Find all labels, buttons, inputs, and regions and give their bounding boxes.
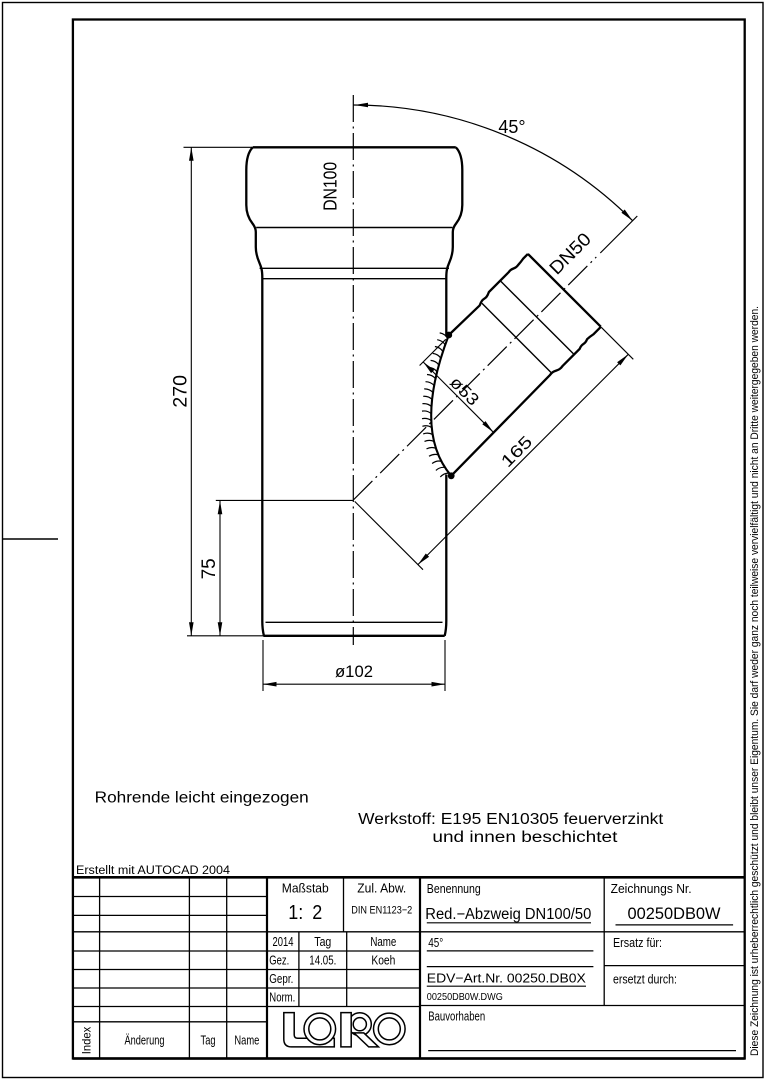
svg-text:EDV−Art.Nr. 00250.DB0X: EDV−Art.Nr. 00250.DB0X (427, 970, 586, 985)
svg-text:Red.−Abzweig DN100/50: Red.−Abzweig DN100/50 (425, 906, 591, 923)
svg-text:Tag: Tag (314, 935, 331, 949)
svg-text:75: 75 (199, 558, 220, 579)
svg-text:2014: 2014 (272, 935, 293, 949)
svg-text:Norm.: Norm. (269, 991, 295, 1005)
svg-text:Rohrende leicht eingezogen: Rohrende leicht eingezogen (95, 790, 309, 807)
svg-text:Diese Zeichnung ist urheberrec: Diese Zeichnung ist urheberrechtlich ges… (749, 306, 761, 1056)
svg-text:14.05.: 14.05. (309, 954, 336, 968)
svg-text:DIN EN1123−2: DIN EN1123−2 (351, 905, 412, 917)
svg-text:00250DB0W: 00250DB0W (628, 904, 721, 923)
svg-text:Gez.: Gez. (269, 954, 289, 968)
svg-text:Index: Index (80, 1027, 94, 1055)
svg-text:Name: Name (370, 935, 396, 949)
svg-text:Erstellt mit AUTOCAD 2004: Erstellt mit AUTOCAD 2004 (76, 865, 231, 877)
svg-text:45°: 45° (428, 935, 443, 950)
svg-text:Benennung: Benennung (427, 882, 481, 896)
svg-text:ø102: ø102 (335, 662, 373, 681)
svg-text:Bauvorhaben: Bauvorhaben (428, 1008, 485, 1023)
svg-text:Gepr.: Gepr. (269, 972, 293, 986)
svg-text:Zeichnungs Nr.: Zeichnungs Nr. (611, 882, 692, 896)
svg-text:Änderung: Änderung (125, 1033, 165, 1048)
svg-text:Tag: Tag (201, 1033, 216, 1048)
svg-text:Maßstab: Maßstab (282, 880, 329, 895)
svg-text:DN100: DN100 (320, 162, 341, 211)
svg-text:00250DB0W.DWG: 00250DB0W.DWG (427, 991, 503, 1003)
svg-text:45°: 45° (498, 117, 525, 137)
svg-text:und innen beschichtet: und innen beschichtet (432, 829, 618, 846)
svg-text:270: 270 (170, 375, 192, 408)
svg-text:Koeh: Koeh (371, 954, 395, 968)
svg-text:1: 2: 1: 2 (288, 902, 322, 924)
svg-text:ersetzt durch:: ersetzt durch: (613, 971, 677, 986)
svg-text:Zul. Abw.: Zul. Abw. (357, 880, 406, 895)
svg-text:Werkstoff: E195 EN10305 feu: Werkstoff: E195 EN10305 feuerverzinkt (358, 811, 664, 828)
svg-text:Ersatz für:: Ersatz für: (613, 935, 662, 950)
svg-text:Name: Name (234, 1033, 259, 1048)
